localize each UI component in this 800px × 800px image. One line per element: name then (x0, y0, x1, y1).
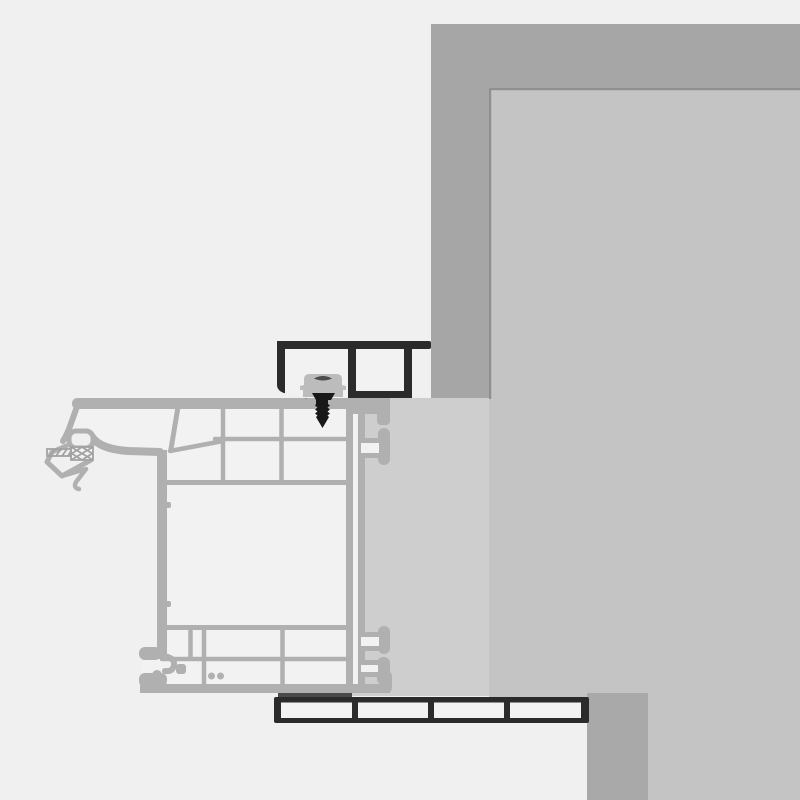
sill-chamber (358, 703, 428, 719)
hook-lug (377, 657, 390, 685)
anchor-lug-upper (378, 428, 390, 465)
seal-strip (278, 693, 352, 698)
lug-slot (361, 443, 379, 453)
frame-flange-step (377, 398, 390, 425)
rail-chamber-right (356, 349, 404, 391)
technical-diagram (0, 0, 800, 800)
chamber-bump (208, 673, 215, 680)
rail-bottom (348, 391, 412, 398)
reveal-edge-left (489, 88, 491, 399)
sill-chamber (281, 703, 352, 719)
reveal-edge-top (489, 88, 800, 90)
lug-slot (361, 665, 378, 672)
sill-chamber (510, 703, 581, 719)
wall-nub (162, 601, 171, 607)
screw-head (312, 393, 335, 400)
lug-stem (360, 672, 379, 677)
sill-chamber (434, 703, 504, 719)
lug-stem (360, 660, 379, 665)
sill-support-block (587, 693, 648, 800)
foot-nub (176, 664, 186, 674)
anchor-lug-lower (378, 626, 390, 654)
wall-nub (162, 502, 171, 508)
foot-bump (152, 670, 162, 680)
rail-top (277, 341, 431, 349)
lug-slot (361, 637, 379, 646)
rail-divider (348, 349, 356, 398)
frame-top-rail (72, 398, 356, 409)
rail-left-wall (277, 341, 285, 385)
gasket-groove (69, 431, 93, 448)
chamber-bump (217, 673, 224, 680)
frame-bottom-rail (140, 684, 390, 693)
rail-right-wall (404, 349, 412, 398)
below-sill-gap (489, 723, 587, 800)
frame-right-wall (346, 401, 353, 688)
